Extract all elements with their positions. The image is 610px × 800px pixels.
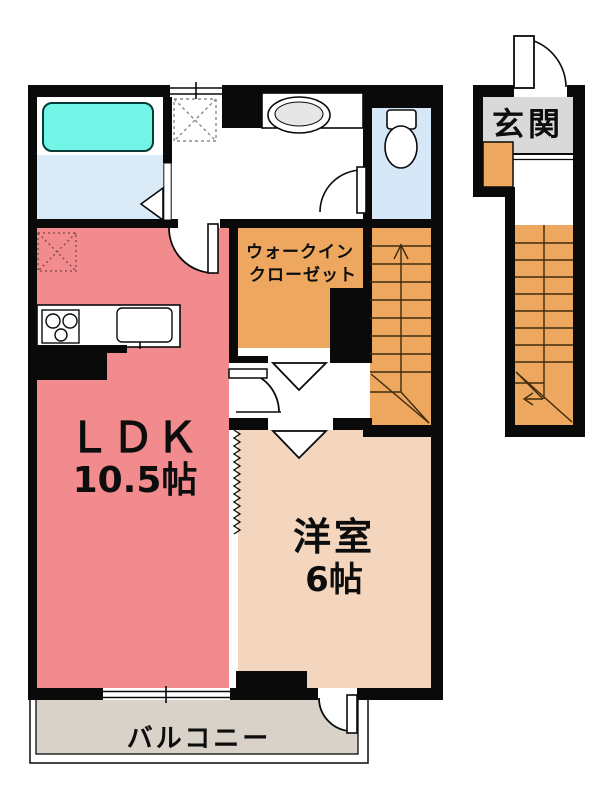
wall-kitchen-step2	[28, 353, 107, 380]
entrance-label: 玄関	[492, 108, 564, 140]
wall-bath-divider	[163, 97, 172, 163]
toilet-room	[385, 110, 417, 168]
ldk-label: ＬＤＫ	[68, 417, 200, 459]
wall-hall-top	[229, 356, 268, 363]
entrance-step-tile	[483, 142, 513, 187]
wall-bedroom-sw	[236, 671, 307, 690]
toilet-bowl-icon	[385, 126, 417, 168]
toilet-door-leaf	[357, 167, 366, 213]
wall-left	[28, 85, 37, 700]
entrance-door	[514, 36, 566, 88]
kitchen-sink-icon	[117, 308, 172, 342]
balcony-door-leaf	[347, 695, 357, 733]
balcony-label: バルコニー	[127, 726, 271, 752]
wall-kitchen-step1	[28, 345, 127, 353]
wall-entrance-bottom	[505, 425, 585, 437]
wall-right	[431, 85, 443, 700]
bedroom-label: 洋室	[293, 518, 375, 556]
walk-in-closet-label-line2: クローゼット	[249, 268, 357, 285]
hallway-door-frame	[229, 369, 267, 378]
wall-bedroom-top-left	[229, 418, 268, 430]
wall-mid-right	[220, 219, 443, 228]
wall-washroom-block	[222, 90, 262, 128]
washroom-door-leaf	[208, 224, 218, 273]
entrance-door-arc	[534, 41, 566, 87]
entrance-block	[483, 97, 573, 437]
wall-stairshaft-left	[505, 187, 515, 437]
wall-entrance-left	[473, 85, 483, 197]
wall-ldk-closet	[229, 219, 238, 356]
floorplan-canvas: 玄関 ウォークイン クローゼット ＬＤＫ 10.5帖 洋室 6帖 バルコニー	[0, 0, 610, 800]
ldk-area-label: 10.5帖	[73, 463, 198, 499]
wall-closet-stairs	[363, 219, 372, 288]
wall-under-stairs	[363, 425, 443, 437]
wall-entrance-right	[573, 85, 585, 437]
vanity-basin-icon	[275, 102, 323, 126]
bedroom-area-label: 6帖	[305, 563, 363, 597]
entrance-door-leaf	[514, 36, 534, 88]
wall-toilet-top	[363, 90, 443, 108]
wall-bottom	[28, 688, 443, 700]
wall-stairs-chunk	[330, 288, 372, 363]
bathtub-icon	[43, 103, 153, 151]
bathroom-door-strip	[164, 163, 171, 220]
bathroom-floor	[37, 155, 163, 219]
wall-mid-left	[28, 219, 178, 228]
walk-in-closet-label-line1: ウォークイン	[246, 245, 354, 262]
